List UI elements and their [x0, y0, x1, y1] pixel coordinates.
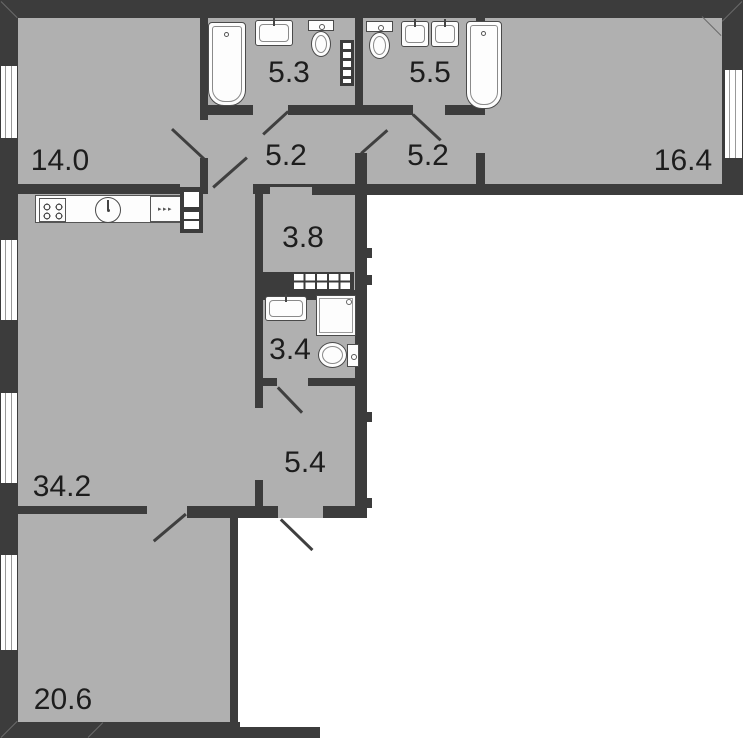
wall-right-mid [355, 153, 367, 518]
room-label: 3.8 [282, 221, 324, 255]
wall-bath-divider [355, 18, 363, 115]
fridge-cell [184, 221, 199, 229]
door-swing-entrance [280, 518, 313, 550]
wall-living-hall-stub [255, 480, 263, 508]
window [1, 393, 17, 483]
wall-room140-bottom [18, 184, 180, 194]
wall-bath55-bottom-l [363, 105, 413, 115]
wall-top [0, 0, 743, 18]
room-label: 5.3 [268, 56, 310, 90]
fridge-icon [180, 187, 203, 233]
kitchen-sink-icon [95, 197, 121, 223]
wash-sink-icon [431, 21, 459, 47]
wall-nub [367, 248, 372, 258]
drain-icon [224, 32, 229, 37]
wall-entry-right [323, 506, 367, 518]
wall-shower-bottom-r [308, 378, 355, 386]
towel-radiator-icon [340, 40, 354, 86]
wall-bath53-bottom-r [288, 105, 363, 115]
fridge-cell [184, 192, 199, 207]
wall-corridor-bottom-b [312, 184, 367, 195]
toilet-bowl-icon [311, 31, 331, 57]
wash-sink-icon [401, 21, 429, 47]
room-label: 5.2 [407, 139, 449, 173]
room-label: 16.4 [654, 144, 712, 178]
threshold-hall38 [270, 184, 312, 187]
toilet-tank-icon [308, 20, 334, 31]
bathtub-icon [466, 21, 502, 109]
wall-bottom [0, 722, 240, 738]
room-label: 14.0 [31, 144, 89, 178]
room-label: 20.6 [34, 683, 92, 717]
wall-nub [367, 275, 372, 285]
wall-nub [367, 412, 372, 422]
wash-sink-icon [255, 20, 293, 46]
window [1, 240, 17, 320]
wall-shower-bottom-l [263, 378, 277, 386]
window [725, 70, 742, 158]
wall-nub [367, 498, 372, 508]
wall-bath53-bottom-l [200, 105, 253, 115]
drain-icon [346, 299, 352, 305]
wardrobe-icon [292, 272, 354, 291]
toilet-bowl-icon [369, 32, 390, 59]
window [1, 555, 17, 650]
wall-band-bottom-right [367, 184, 743, 195]
toilet-tank-icon [347, 344, 359, 367]
room-label: 5.5 [409, 56, 451, 90]
toilet-tank-icon [366, 21, 393, 32]
stove-icon [39, 198, 66, 222]
dishwasher-icon: ▸▸▸ [150, 196, 181, 222]
fridge-cell [184, 212, 199, 219]
toilet-bowl-icon [318, 342, 347, 368]
wall-bottom-extension [240, 727, 320, 738]
room-label: 5.4 [284, 446, 326, 480]
shower-tray-icon [316, 295, 356, 336]
wall-room206-right [230, 510, 238, 726]
wash-sink-icon [265, 296, 307, 321]
room-label: 3.4 [269, 333, 311, 367]
duct-shaft [263, 272, 292, 292]
window [1, 66, 17, 138]
room-label: 34.2 [33, 470, 91, 504]
bathtub-icon [208, 22, 246, 106]
room-label: 5.2 [265, 139, 307, 173]
drain-icon [481, 31, 486, 36]
floor-plan: ▸▸▸ 14.0 5.3 5.5 5.2 5.2 16.4 3.8 3.4 5.… [0, 0, 743, 738]
wall-entry-left [187, 506, 278, 518]
wall-living-room206-divider [18, 506, 147, 514]
